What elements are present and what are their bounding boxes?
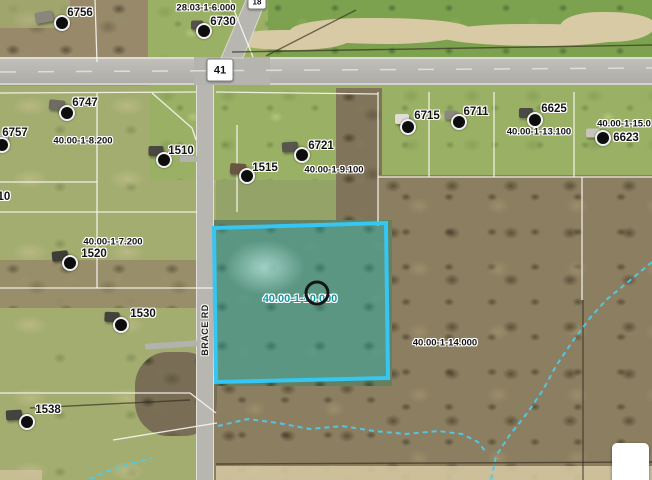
map-control-button[interactable]	[612, 443, 649, 480]
golf-sand-bunker	[230, 30, 350, 50]
driveway	[180, 156, 198, 162]
road-intersection	[194, 57, 270, 85]
aerial-field-corner	[0, 0, 70, 28]
road-brace-rd	[196, 83, 214, 480]
aerial-tree-strip	[336, 88, 382, 226]
gis-map-viewport[interactable]: BRACE RD 40.00-1-10.000 675628.03-1-6.00…	[0, 0, 652, 480]
golf-sand-bunker	[560, 12, 652, 42]
aerial-sand-strip-bottom	[216, 466, 652, 480]
aerial-brush-east	[378, 175, 652, 480]
road-route-41	[0, 57, 652, 85]
aerial-woods-band-left	[0, 260, 216, 308]
aerial-golf-course	[268, 0, 652, 58]
selected-parcel[interactable]	[214, 223, 388, 382]
aerial-lawn-residential	[150, 84, 652, 180]
aerial-brush-south	[214, 378, 380, 480]
aerial-sand-corner	[0, 470, 42, 480]
